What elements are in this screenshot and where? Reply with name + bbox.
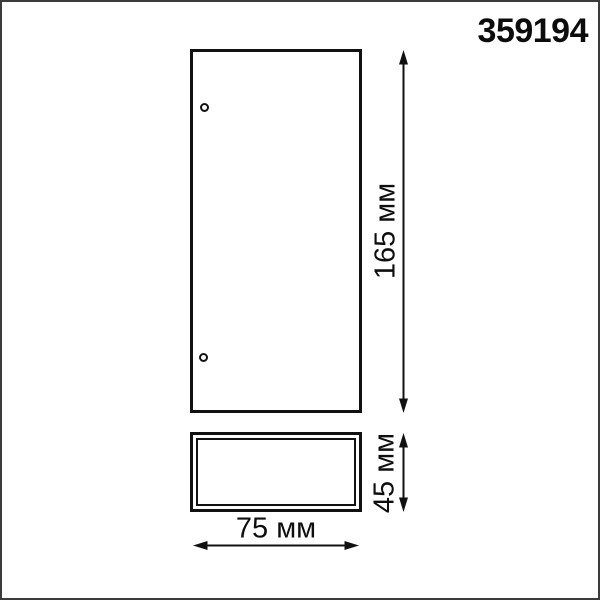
height-dimension-label: 165 мм bbox=[372, 183, 401, 279]
mounting-hole-top bbox=[200, 103, 209, 112]
depth-dimension-label: 45 мм bbox=[371, 433, 400, 513]
front-view-outline bbox=[190, 49, 362, 413]
mounting-hole-bottom bbox=[199, 353, 208, 362]
part-number: 359194 bbox=[478, 14, 588, 48]
width-dimension-label: 75 мм bbox=[236, 515, 316, 544]
side-view-inner-outline bbox=[196, 438, 356, 506]
technical-drawing-canvas: 359194 165 мм 45 мм 75 мм bbox=[0, 0, 600, 600]
side-view-outline bbox=[190, 432, 362, 512]
